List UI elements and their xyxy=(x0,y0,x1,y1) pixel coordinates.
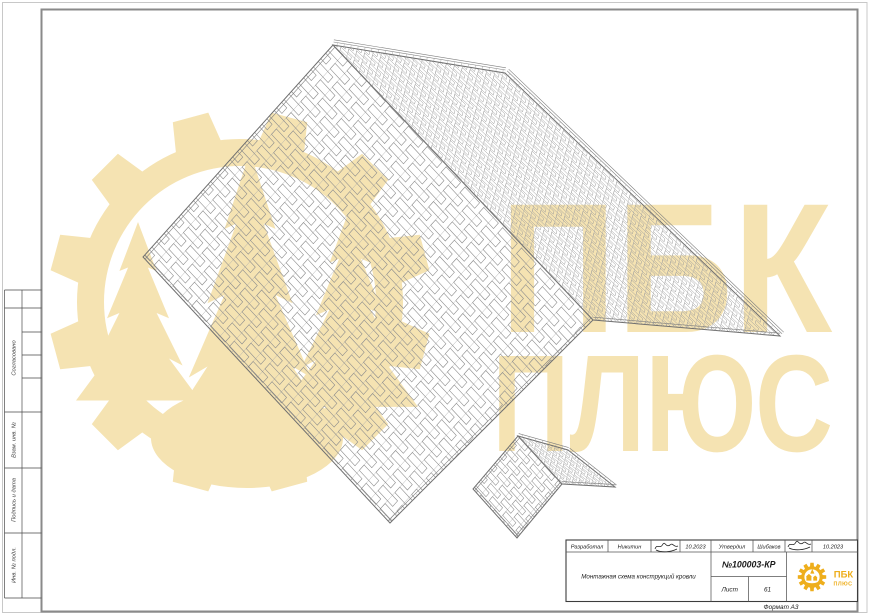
strip-label-signature-date: Подпись и дата xyxy=(12,477,18,522)
format-label: Формат А3 xyxy=(764,604,799,611)
document-number: №100003-КР xyxy=(722,560,776,570)
strip-label-agreed: Согласовано xyxy=(12,340,18,376)
logo-sub-text: ПЛЮС xyxy=(833,582,852,588)
attribute-strip-grid xyxy=(5,290,42,598)
watermark-brand-subtext: ПЛЮС xyxy=(492,327,833,481)
sheet-canvas: ПБК ПЛЮС Согласовано Взам. инв. № Подпис… xyxy=(0,0,870,615)
sheet-number: 61 xyxy=(764,587,772,594)
sheet-label: Лист xyxy=(720,587,738,594)
attribute-strip: Согласовано Взам. инв. № Подпись и дата … xyxy=(5,290,42,598)
drawing-sheet: ПБК ПЛЮС Согласовано Взам. инв. № Подпис… xyxy=(0,0,870,615)
approved-name: Шибаков xyxy=(757,544,780,550)
developed-name: Никитин xyxy=(618,544,642,550)
drawing-title: Монтажная схема конструкций кровли xyxy=(581,574,696,581)
strip-label-replacement-inv: Взам. инв. № xyxy=(12,422,18,458)
developed-date: 10.2023 xyxy=(685,544,706,550)
main-roof-structure xyxy=(118,0,784,602)
approved-date: 10.2023 xyxy=(823,544,844,550)
logo-brand-text: ПБК xyxy=(834,570,854,581)
title-block: Разработал Никитин 10.2023 Утвердил Шиба… xyxy=(566,540,858,611)
approved-label: Утвердил xyxy=(718,544,746,550)
developed-label: Разработал xyxy=(571,544,604,550)
strip-label-inv-original: Инв. № подл. xyxy=(12,547,18,583)
